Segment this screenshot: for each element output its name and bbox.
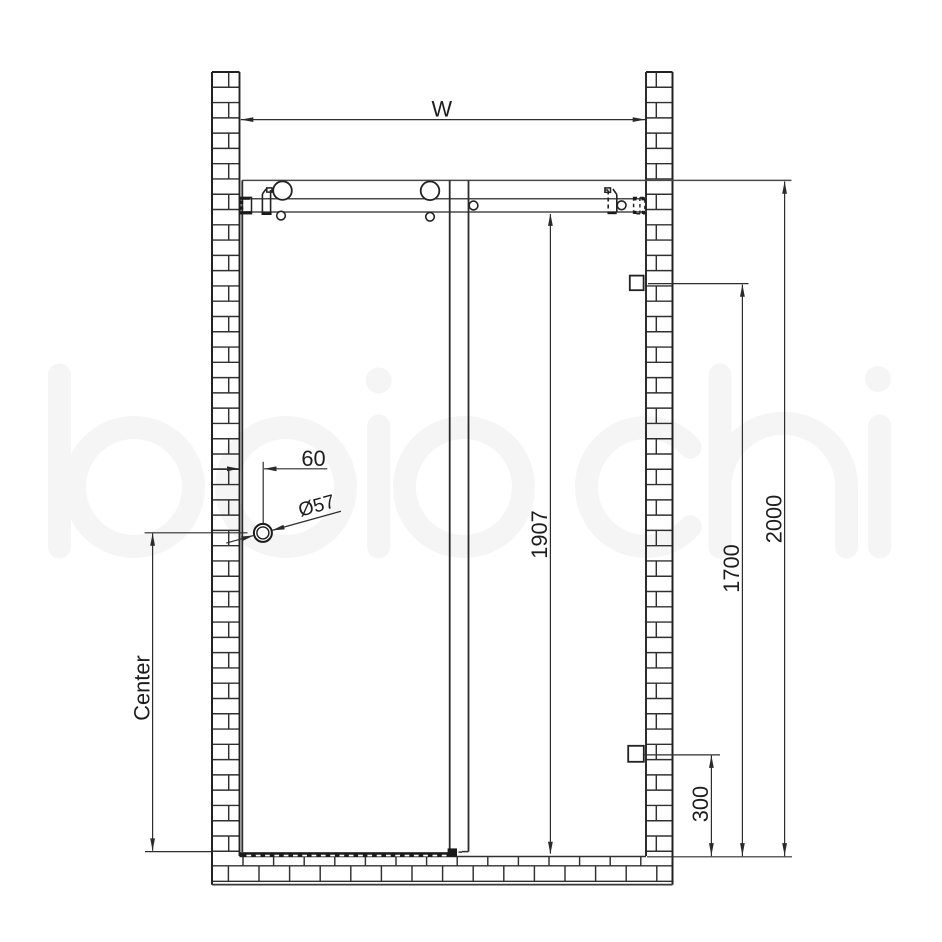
svg-text:300: 300 [688, 786, 713, 822]
svg-text:1907: 1907 [527, 510, 552, 559]
svg-text:Center: Center [130, 655, 155, 720]
svg-text:1700: 1700 [719, 544, 744, 593]
svg-text:60: 60 [301, 446, 325, 471]
svg-text:2000: 2000 [762, 495, 787, 544]
svg-text:W: W [432, 97, 453, 122]
